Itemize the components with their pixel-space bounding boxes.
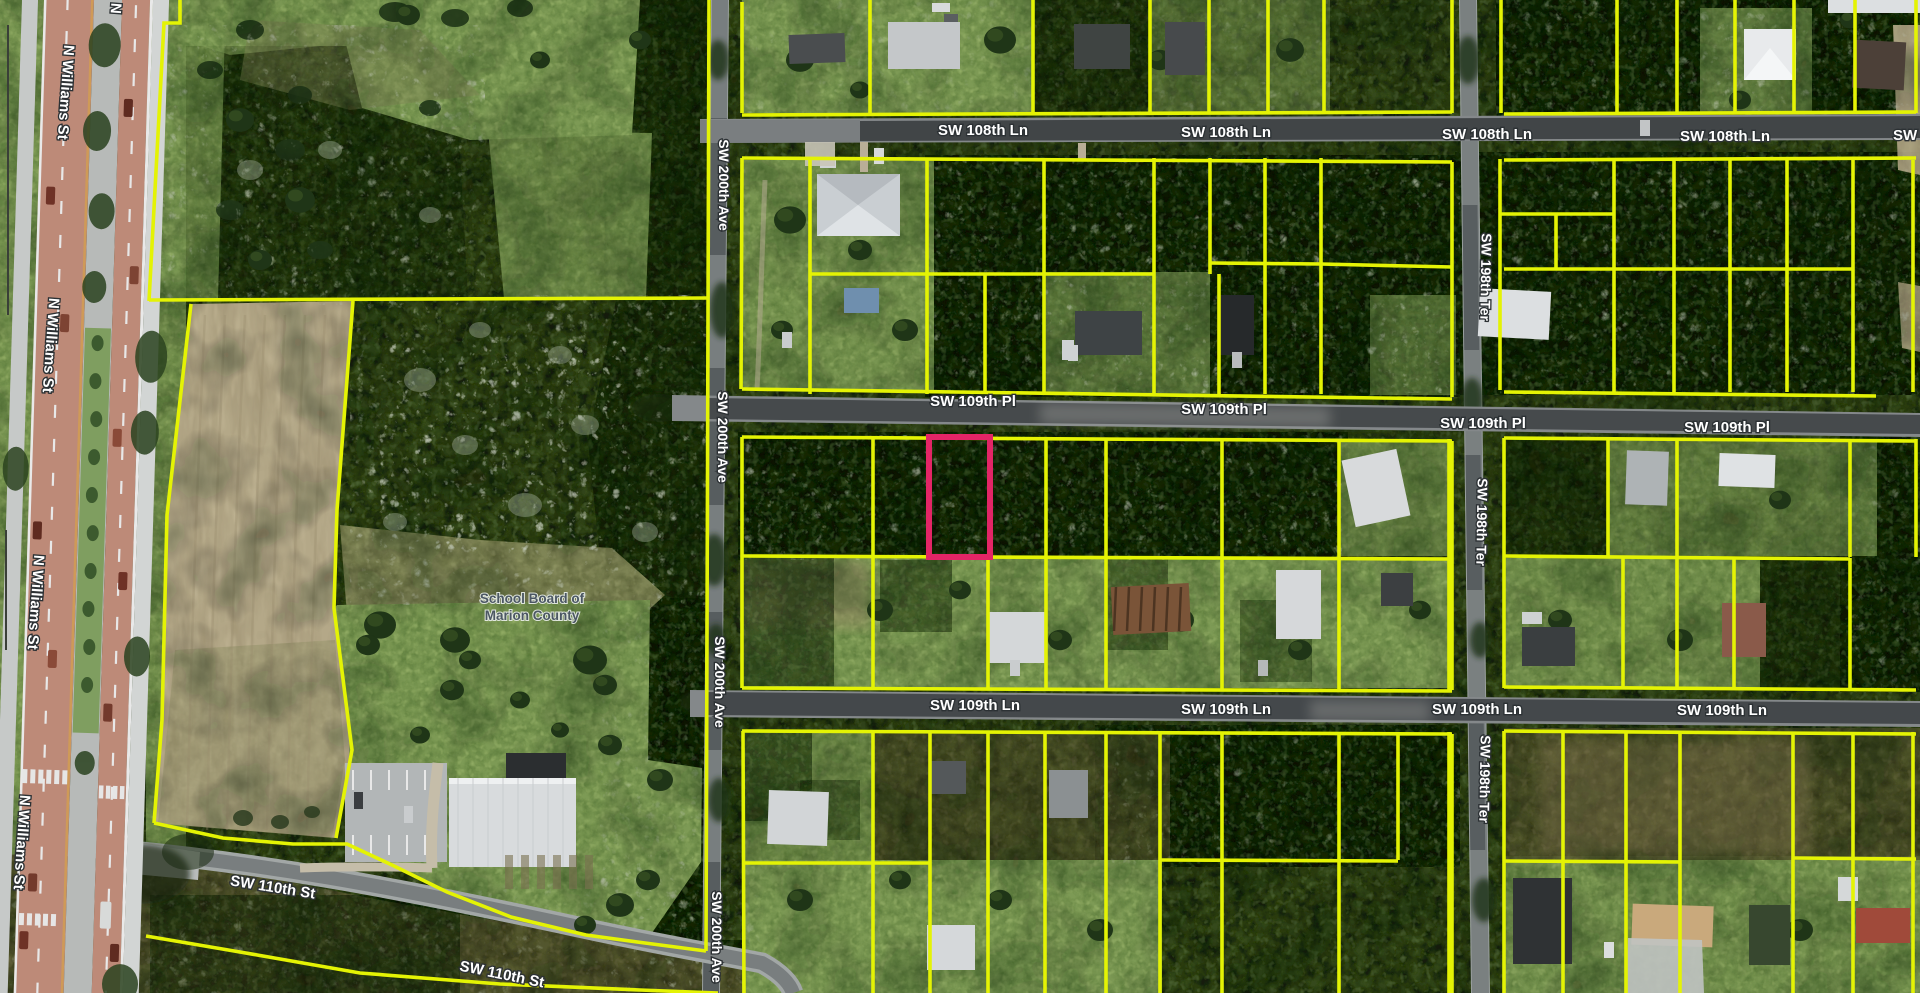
svg-text:SW 200th Ave: SW 200th Ave <box>712 636 728 728</box>
svg-text:SW 198th Ter: SW 198th Ter <box>1476 735 1494 823</box>
svg-text:School Board of: School Board of <box>480 591 585 606</box>
svg-text:SW 200th Ave: SW 200th Ave <box>715 391 731 483</box>
svg-text:SW 108th Ln: SW 108th Ln <box>1680 128 1770 145</box>
svg-text:N: N <box>107 2 125 14</box>
svg-text:SW 198th Ter: SW 198th Ter <box>1473 478 1491 566</box>
svg-text:SW 108th Ln: SW 108th Ln <box>1181 124 1271 141</box>
svg-text:SW 109th Ln: SW 109th Ln <box>930 697 1020 714</box>
svg-text:SW 109th Ln: SW 109th Ln <box>1181 701 1271 718</box>
svg-text:SW 198th Ter: SW 198th Ter <box>1477 233 1495 321</box>
svg-text:SW 109th Pl: SW 109th Pl <box>930 393 1016 410</box>
svg-text:SW 109th Pl: SW 109th Pl <box>1181 401 1267 418</box>
svg-text:SW 200th Ave: SW 200th Ave <box>709 891 725 983</box>
svg-text:SW 108th Ln: SW 108th Ln <box>1893 127 1920 144</box>
svg-text:SW 108th Ln: SW 108th Ln <box>938 122 1028 139</box>
svg-text:SW 200th Ave: SW 200th Ave <box>716 139 732 231</box>
svg-text:SW 109th Ln: SW 109th Ln <box>1432 701 1522 718</box>
svg-text:SW 109th Pl: SW 109th Pl <box>1684 419 1770 436</box>
svg-text:SW 108th Ln: SW 108th Ln <box>1442 126 1532 143</box>
svg-text:Marion County: Marion County <box>485 608 580 623</box>
svg-text:SW 109th Ln: SW 109th Ln <box>1677 702 1767 719</box>
svg-text:SW 109th Pl: SW 109th Pl <box>1440 415 1526 432</box>
